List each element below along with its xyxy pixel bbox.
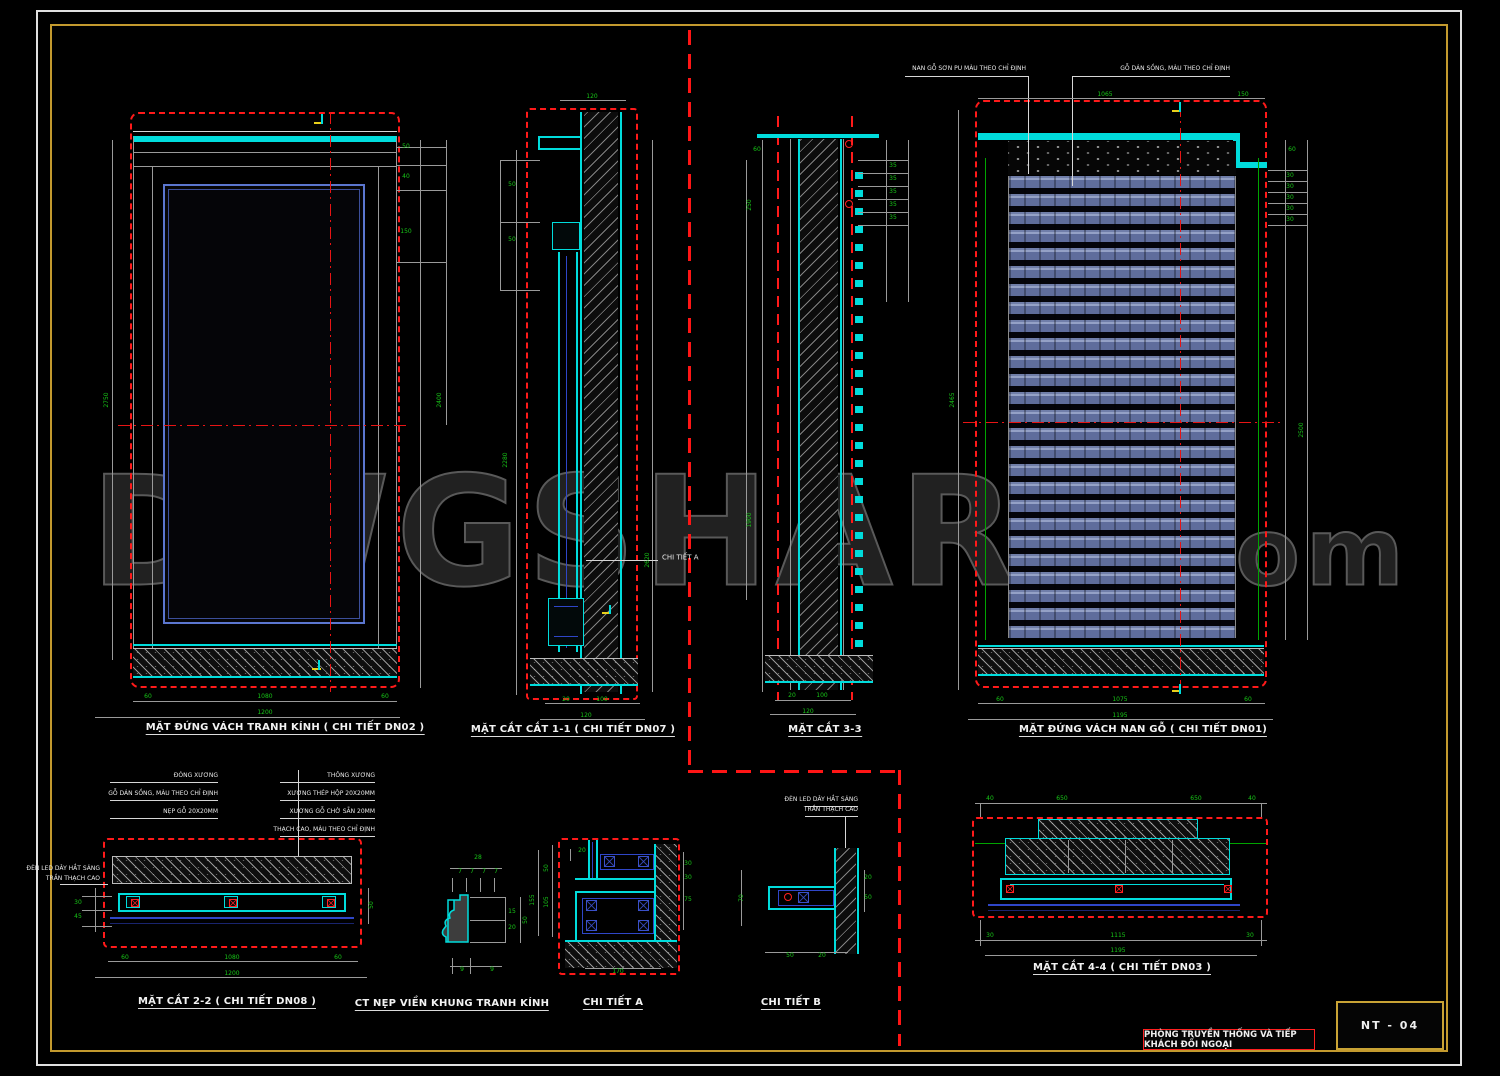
dim-label: 75 [684, 897, 692, 903]
dim-label: 20 [508, 925, 516, 931]
dim-label: 7 [458, 869, 462, 875]
dim-label: 40 [1248, 796, 1256, 802]
dim-label: 2620 [645, 552, 651, 567]
dim-label: 60 [1288, 147, 1296, 153]
dim-label: 30 [1246, 933, 1254, 939]
dim-label: 30 [1286, 217, 1294, 223]
dim-label: 155 [530, 894, 536, 905]
dim-label: 20 [864, 875, 872, 881]
dim-label: 105 [544, 896, 550, 907]
dim-label: 28 [474, 855, 482, 861]
note-label: GỖ DÁN SỒNG, MÀU THEO CHỈ ĐỊNH [1120, 66, 1230, 72]
dim-label: 30 [1286, 206, 1294, 212]
title-block-room-text: PHÒNG TRUYỀN THỐNG VÀ TIẾP KHÁCH ĐỐI NGO… [1144, 1030, 1314, 1050]
dim-label: 50 [544, 864, 550, 872]
dim-label: 1115 [1110, 933, 1125, 939]
note-label: ĐÈN LED DÂY HẮT SÁNG [26, 866, 100, 872]
note-label: TRẦN THẠCH CAO [46, 876, 100, 882]
dim-label: 60 [996, 697, 1004, 703]
dim-label: 50 [508, 182, 516, 188]
note-label: XƯƠNG THÉP HỘP 20X20MM [287, 791, 375, 797]
dim-label: 7 [494, 869, 498, 875]
title-d9: MẶT CẮT 4-4 ( CHI TIẾT DN03 ) [1033, 962, 1211, 975]
note-label: THẠCH CAO, MÀU THEO CHỈ ĐỊNH [273, 827, 375, 833]
dim-label: 30 [1286, 173, 1294, 179]
dim-label: 120 [580, 713, 591, 719]
dim-label: 2465 [950, 392, 956, 407]
dim-label: 15 [508, 909, 516, 915]
dim-label: 1195 [1112, 713, 1127, 719]
dim-label: 2400 [437, 392, 443, 407]
note-label: NẸP GỖ 20X20MM [163, 809, 218, 815]
dim-label: 70 [739, 894, 745, 902]
dim-label: 30 [74, 900, 82, 906]
dim-label: 30 [986, 933, 994, 939]
dim-label: 120 [586, 94, 597, 100]
dim-label: 9 [490, 967, 494, 973]
dim-label: 1200 [224, 971, 239, 977]
dim-label: 60 [144, 694, 152, 700]
dim-label: 2750 [104, 392, 110, 407]
title-d6: CT NẸP VIỀN KHUNG TRANH KÍNH [355, 998, 549, 1011]
dim-label: 40 [402, 174, 410, 180]
dim-label: 35 [889, 202, 897, 208]
note-label: ĐÈN LED DÂY HẮT SÁNG [784, 797, 858, 803]
dim-label: 30 [1286, 195, 1294, 201]
title-d7: CHI TIẾT A [583, 997, 643, 1010]
title-d3: MẶT CẮT 3-3 [788, 724, 862, 737]
dim-label: 150 [1237, 92, 1248, 98]
dim-label: 35 [889, 163, 897, 169]
dim-label: 30 [1286, 184, 1294, 190]
title-d1: MẶT ĐỨNG VÁCH TRANH KÍNH ( CHI TIẾT DN02… [146, 722, 425, 735]
dim-label: 20 [818, 953, 826, 959]
dim-label: 60 [381, 694, 389, 700]
dim-label: 60 [1244, 697, 1252, 703]
dim-label: 60 [121, 955, 129, 961]
dim-label: 50 [508, 237, 516, 243]
dim-label: 20 [788, 693, 796, 699]
title-block-sheet-number: NT - 04 [1336, 1001, 1444, 1050]
dim-label: 20 [562, 697, 570, 703]
note-label: CHI TIẾT A [662, 555, 699, 562]
title-d8: CHI TIẾT B [761, 997, 821, 1010]
dim-label: 45 [74, 914, 82, 920]
cad-sheet: DWGSHARE .com [0, 0, 1500, 1076]
title-d2: MẶT CẮT CẮT 1-1 ( CHI TIẾT DN07 ) [471, 724, 675, 737]
title-block-room: PHÒNG TRUYỀN THỐNG VÀ TIẾP KHÁCH ĐỐI NGO… [1143, 1029, 1315, 1050]
dim-label: 7 [482, 869, 486, 875]
dim-label: 20 [578, 848, 586, 854]
dim-label: 1075 [1112, 697, 1127, 703]
dim-label: 50 [523, 916, 529, 924]
dim-label: 35 [889, 176, 897, 182]
dim-label: 100 [596, 697, 607, 703]
dim-label: 1900 [747, 512, 753, 527]
sheet-number-text: NT - 04 [1361, 1019, 1419, 1032]
note-label: THÔNG XƯƠNG [327, 773, 375, 779]
note-label: TRẦN THẠCH CAO [804, 807, 858, 813]
dim-label: 2500 [1299, 422, 1305, 437]
dim-label: 650 [1190, 796, 1201, 802]
dim-label: 50 [864, 895, 872, 901]
dim-label: 60 [334, 955, 342, 961]
dim-label: 2280 [503, 452, 509, 467]
dim-label: 100 [816, 693, 827, 699]
title-d5: MẶT CẮT 2-2 ( CHI TIẾT DN08 ) [138, 996, 316, 1009]
dim-label: 1195 [1110, 948, 1125, 954]
note-label: ĐÓNG XƯƠNG [174, 773, 218, 779]
dim-label: 60 [753, 147, 761, 153]
annotation-layer: 6010806012002750504015024001205050228026… [0, 0, 1500, 1076]
dim-label: 50 [786, 953, 794, 959]
dim-label: 30 [684, 875, 692, 881]
note-label: GỖ DÁN SỒNG, MÀU THEO CHỈ ĐỊNH [108, 791, 218, 797]
title-d4: MẶT ĐỨNG VÁCH NAN GỖ ( CHI TIẾT DN01) [1019, 724, 1267, 737]
dim-label: 650 [1056, 796, 1067, 802]
dim-label: 170 [612, 969, 623, 975]
dim-label: 1200 [257, 710, 272, 716]
dim-label: 30 [684, 861, 692, 867]
dim-label: 35 [889, 215, 897, 221]
note-label: XƯƠNG GỖ CHỜ SẴN 20MM [290, 809, 375, 815]
dim-label: 250 [747, 199, 753, 210]
dim-label: 1080 [257, 694, 272, 700]
dim-label: 35 [889, 189, 897, 195]
dim-label: 120 [802, 709, 813, 715]
note-label: NAN GỖ SƠN PU MÀU THEO CHỈ ĐỊNH [912, 66, 1026, 72]
dim-label: 150 [400, 229, 411, 235]
dim-label: 7 [470, 869, 474, 875]
dim-label: 1065 [1097, 92, 1112, 98]
dim-label: 9 [460, 967, 464, 973]
dim-label: 50 [402, 144, 410, 150]
dim-label: 1080 [224, 955, 239, 961]
dim-label: 50 [369, 901, 375, 909]
dim-label: 40 [986, 796, 994, 802]
